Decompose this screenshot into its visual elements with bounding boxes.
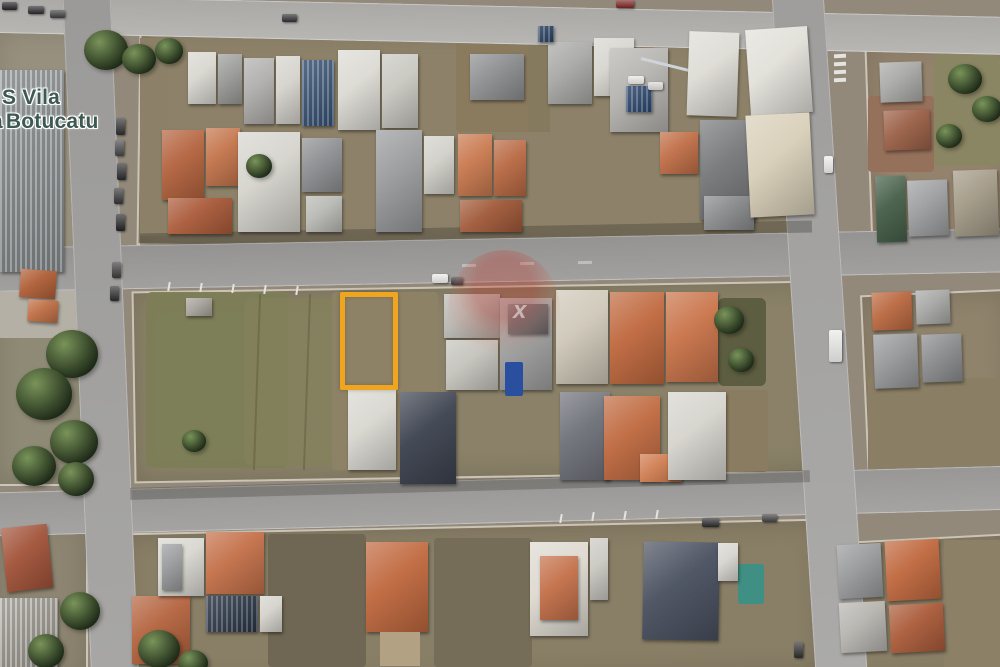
building-roof — [660, 132, 698, 174]
car — [116, 118, 125, 135]
tree — [714, 306, 744, 334]
lane-dash — [520, 262, 534, 265]
place-label-line1: S Vila — [2, 86, 98, 110]
building-roof — [718, 543, 738, 581]
building-roof — [424, 136, 454, 194]
building-roof — [168, 198, 232, 234]
dirt-lot — [268, 534, 366, 667]
tree — [728, 348, 754, 372]
building-roof — [883, 109, 930, 151]
building-roof — [460, 200, 522, 232]
building-roof — [889, 603, 945, 654]
green-roof — [875, 175, 907, 242]
building-roof — [704, 196, 754, 230]
lot-highlight-rectangle — [340, 292, 398, 390]
tree — [84, 30, 128, 70]
car — [117, 163, 126, 180]
tree — [122, 44, 156, 74]
building-roof — [302, 138, 342, 192]
building-roof — [162, 544, 182, 590]
tree — [936, 124, 962, 148]
building-roof — [610, 292, 664, 384]
building-roof — [907, 179, 949, 236]
building-roof — [348, 390, 396, 470]
blue-tarp — [505, 362, 523, 396]
car — [114, 188, 123, 204]
building-roof — [188, 52, 216, 104]
building-roof — [260, 596, 282, 632]
car — [282, 14, 297, 22]
building-roof — [244, 58, 274, 124]
building-roof — [276, 56, 300, 124]
building-roof — [879, 61, 922, 102]
solar-panel-roof — [538, 26, 554, 42]
tree — [50, 420, 98, 464]
building-roof — [508, 304, 548, 334]
building-roof — [306, 196, 342, 232]
car — [702, 518, 719, 527]
building-roof — [548, 42, 592, 104]
building-roof — [871, 291, 912, 330]
tree — [138, 630, 180, 667]
building-roof — [444, 294, 500, 338]
dirt-lot — [944, 540, 1000, 667]
dirt-lot — [868, 378, 1000, 472]
car — [2, 2, 17, 10]
dirt-lot — [434, 538, 532, 667]
place-label-line2-text: Botucatu — [6, 110, 99, 133]
tree — [155, 38, 183, 64]
lane-dash — [462, 264, 476, 267]
building-roof — [642, 541, 720, 640]
building-roof — [376, 130, 422, 232]
bus — [829, 330, 842, 362]
driveway — [380, 632, 420, 666]
place-label: S Vila aBotucatu — [0, 86, 98, 134]
car — [115, 140, 124, 156]
tree — [58, 462, 94, 496]
car — [628, 76, 644, 84]
car — [451, 277, 463, 285]
building-roof — [560, 392, 610, 480]
building-roof — [953, 169, 999, 236]
building-roof — [206, 128, 240, 186]
building-roof — [745, 112, 814, 217]
solar-panel-roof — [206, 596, 258, 632]
building-roof — [19, 269, 57, 299]
building-roof — [206, 532, 264, 594]
building-roof — [837, 543, 884, 599]
building-roof — [556, 290, 608, 384]
car — [762, 514, 777, 522]
shed-roof — [186, 298, 212, 316]
building-roof — [666, 292, 718, 382]
car — [112, 262, 121, 278]
car — [50, 10, 65, 18]
building-roof — [884, 539, 941, 602]
car — [116, 214, 125, 231]
building-roof — [162, 130, 204, 200]
building-roof — [338, 50, 380, 130]
building-roof — [366, 542, 428, 632]
building-roof — [27, 299, 58, 323]
building-roof — [446, 340, 498, 390]
building-roof — [668, 392, 726, 480]
pool — [738, 564, 764, 604]
crosswalk-stripe — [834, 54, 846, 59]
building-roof — [218, 54, 242, 104]
building-roof — [458, 134, 492, 196]
place-label-clipped-char: a — [0, 110, 3, 133]
building-roof — [921, 333, 963, 382]
building-roof — [839, 601, 888, 653]
building-roof — [1, 524, 53, 592]
car — [432, 274, 448, 283]
tree — [246, 154, 272, 178]
tree — [948, 64, 982, 94]
building-roof — [687, 31, 740, 117]
crosswalk-stripe — [834, 78, 846, 83]
solar-panel-roof — [626, 86, 652, 112]
building-roof — [382, 54, 418, 128]
building-roof — [590, 538, 608, 600]
building-roof — [873, 333, 919, 389]
crosswalk-stripe — [834, 62, 846, 67]
tree — [182, 430, 206, 452]
lane-dash — [578, 261, 592, 264]
building-roof — [470, 54, 524, 100]
building-roof — [745, 26, 813, 116]
tree — [16, 368, 72, 420]
car — [794, 642, 803, 658]
car — [616, 0, 634, 8]
car — [110, 286, 119, 301]
tree — [60, 592, 100, 630]
tree — [28, 634, 64, 667]
crosswalk-stripe — [834, 70, 846, 75]
building-roof — [238, 132, 300, 232]
car — [824, 156, 833, 173]
building-roof — [400, 392, 456, 484]
car — [648, 82, 663, 90]
building-roof — [540, 556, 578, 620]
building-roof — [494, 140, 526, 196]
satellite-map-image[interactable]: x S Vila aBotucatu — [0, 0, 1000, 667]
tree — [972, 96, 1000, 122]
building-roof — [915, 289, 950, 324]
place-label-line2: aBotucatu — [0, 110, 98, 134]
tree — [12, 446, 56, 486]
solar-panel-roof — [302, 60, 334, 126]
car — [28, 6, 44, 14]
